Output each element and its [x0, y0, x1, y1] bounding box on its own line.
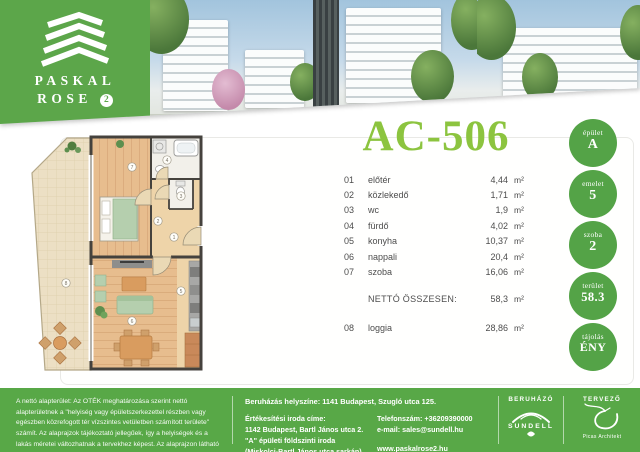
room-row: 02 közlekedő 1,71 m² [344, 187, 530, 202]
plan-room-number: 6 [131, 319, 134, 325]
header-photos [150, 0, 640, 126]
brand-logo: PASKAL ROSE 2 [0, 0, 150, 126]
room-name: előtér [368, 175, 458, 185]
building-photo-1 [150, 0, 313, 126]
designer-name: Picas Architekt [564, 434, 640, 440]
flyer-page: PASKAL ROSE 2 [0, 0, 640, 452]
logo-badge-2: 2 [100, 94, 113, 107]
footer-contact: Beruházás helyszíne: 1141 Budapest, Szug… [233, 388, 498, 452]
chevrons-icon [33, 9, 117, 67]
architect-bird-icon [574, 403, 630, 431]
room-row: 04 fürdő 4,02 m² [344, 218, 530, 233]
room-row: 03 wc 1,9 m² [344, 203, 530, 218]
plan-room-number: 7 [131, 165, 134, 171]
room-list: 01 előtér 4,44 m² 02 közlekedő 1,71 m² 0… [344, 172, 530, 336]
building-photo-2 [313, 0, 476, 126]
plan-room-number: 4 [166, 158, 169, 164]
net-total-row: NETTÓ ÖSSZESEN: 58,3 m² [344, 292, 530, 307]
website-link[interactable]: www.paskalrose2.hu [377, 444, 448, 452]
room-num: 01 [344, 175, 364, 185]
footer: A nettó alapterület: Az OTÉK meghatározá… [0, 388, 640, 452]
plan-room-number: 1 [173, 235, 176, 241]
plan-room-number: 8 [65, 281, 68, 287]
plan-loggia [32, 138, 91, 370]
phone-number: Telefonszám: +36209390000 [377, 414, 490, 425]
designer-section: TERVEZŐ Picas Architekt [564, 388, 640, 452]
contact-details: Telefonszám: +36209390000 e-mail: sales@… [377, 414, 490, 452]
developer-name: SUNDELL [508, 423, 554, 430]
unit-code-title: AC-506 [336, 112, 536, 161]
logo-line1: PASKAL [0, 72, 150, 90]
attribute-badges: épület A emelet 5 szoba 2 terület 58.3 t… [569, 119, 617, 374]
sales-office: Értékesítési iroda címe: 1142 Budapest, … [245, 414, 377, 452]
floor-plan: 1 2 3 4 5 6 7 8 [20, 133, 310, 380]
net-total-label: NETTÓ ÖSSZESEN: [368, 294, 458, 304]
badge-area: terület 58.3 [569, 272, 617, 320]
sundell-logo-icon: SUNDELL [501, 403, 561, 441]
badge-building: épület A [569, 119, 617, 167]
header: PASKAL ROSE 2 [0, 0, 640, 126]
room-row: 06 nappali 20,4 m² [344, 249, 530, 264]
plan-room-number: 2 [157, 219, 160, 225]
plan-room-number: 3 [180, 194, 183, 200]
logo-line2: ROSE 2 [0, 90, 150, 108]
badge-orientation: tájolás ÉNY [569, 323, 617, 371]
developer-label: BERUHÁZÓ [499, 396, 563, 403]
office-title: Értékesítési iroda címe: [245, 414, 377, 425]
room-area: 4,44 [462, 175, 508, 185]
room-unit: m² [512, 175, 530, 185]
room-row: 01 előtér 4,44 m² [344, 172, 530, 187]
loggia-row: 08 loggia 28,86 m² [344, 320, 530, 335]
room-row: 05 konyha 10,37 m² [344, 234, 530, 249]
designer-label: TERVEZŐ [564, 396, 640, 403]
badge-rooms: szoba 2 [569, 221, 617, 269]
building-photo-3 [477, 0, 640, 126]
header-band: PASKAL ROSE 2 [0, 0, 640, 126]
plan-room-number: 5 [180, 289, 183, 295]
room-row: 07 szoba 16,06 m² [344, 264, 530, 279]
developer-section: BERUHÁZÓ SUNDELL [499, 388, 563, 452]
net-total-value: 58,3 [462, 294, 508, 304]
badge-floor: emelet 5 [569, 170, 617, 218]
project-location: Beruházás helyszíne: 1141 Budapest, Szug… [245, 396, 490, 407]
disclaimer-text: A nettó alapterület: Az OTÉK meghatározá… [0, 388, 232, 452]
email-link[interactable]: e-mail: sales@sundell.hu [377, 425, 463, 434]
